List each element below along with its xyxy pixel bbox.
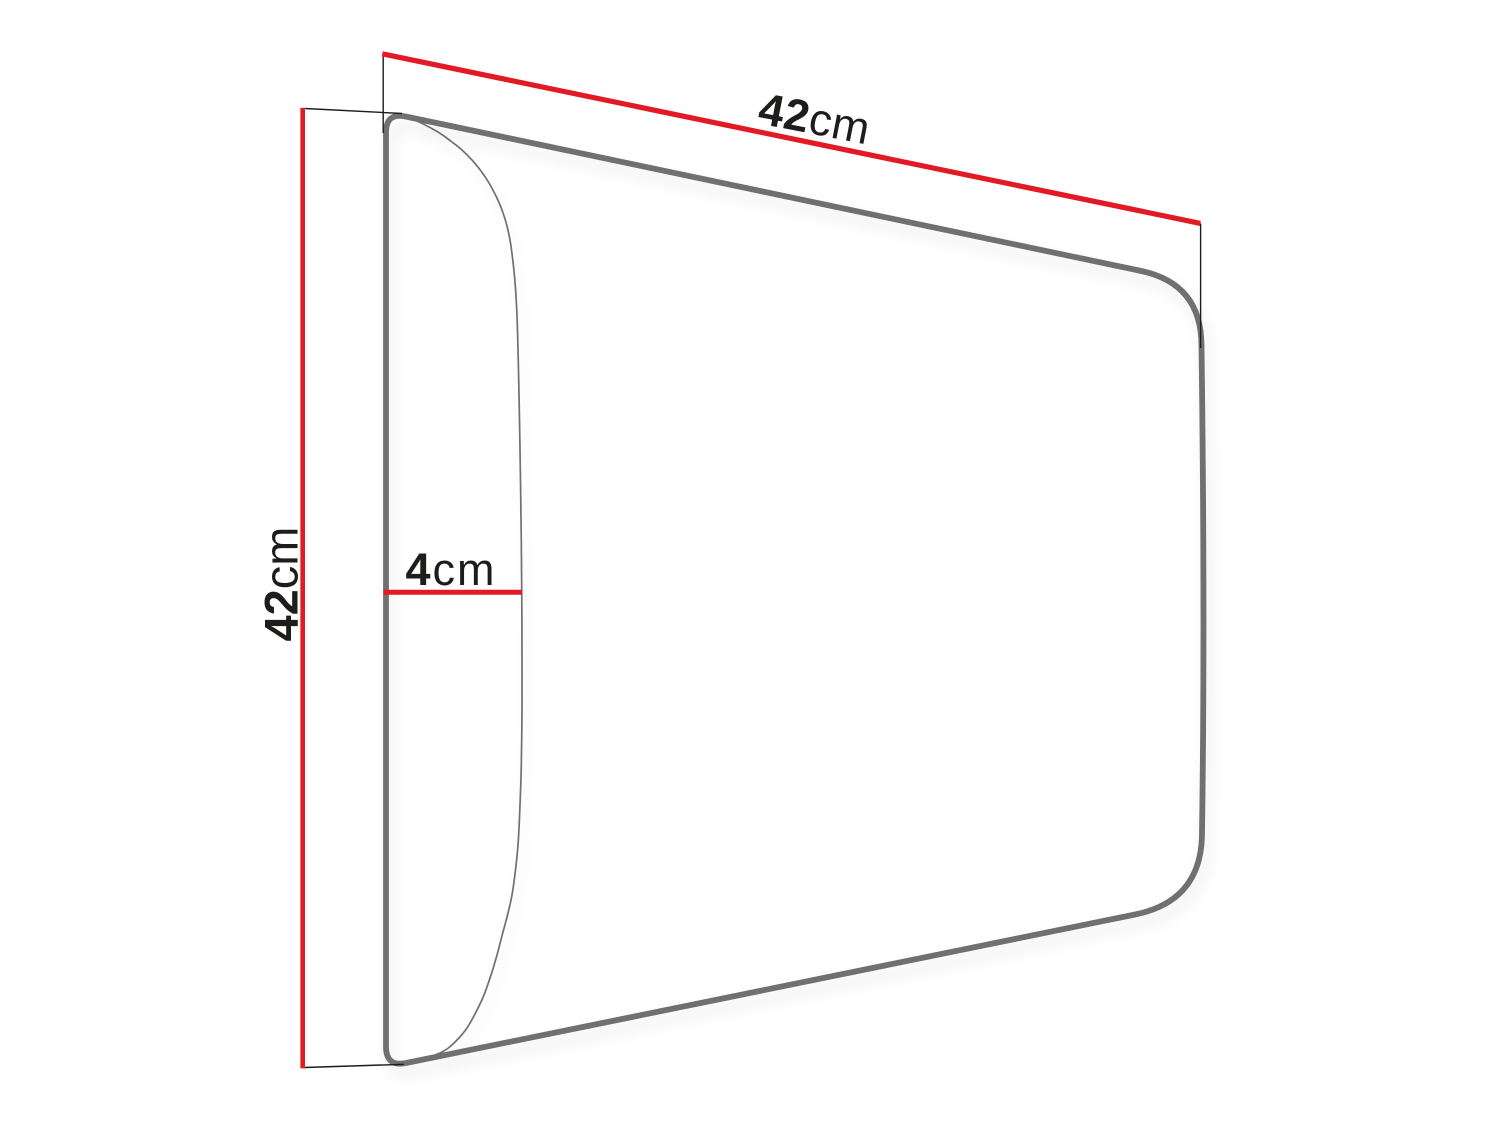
svg-text:42cm: 42cm (255, 527, 308, 642)
svg-text:4cm: 4cm (406, 544, 497, 595)
svg-text:42cm: 42cm (755, 83, 875, 155)
